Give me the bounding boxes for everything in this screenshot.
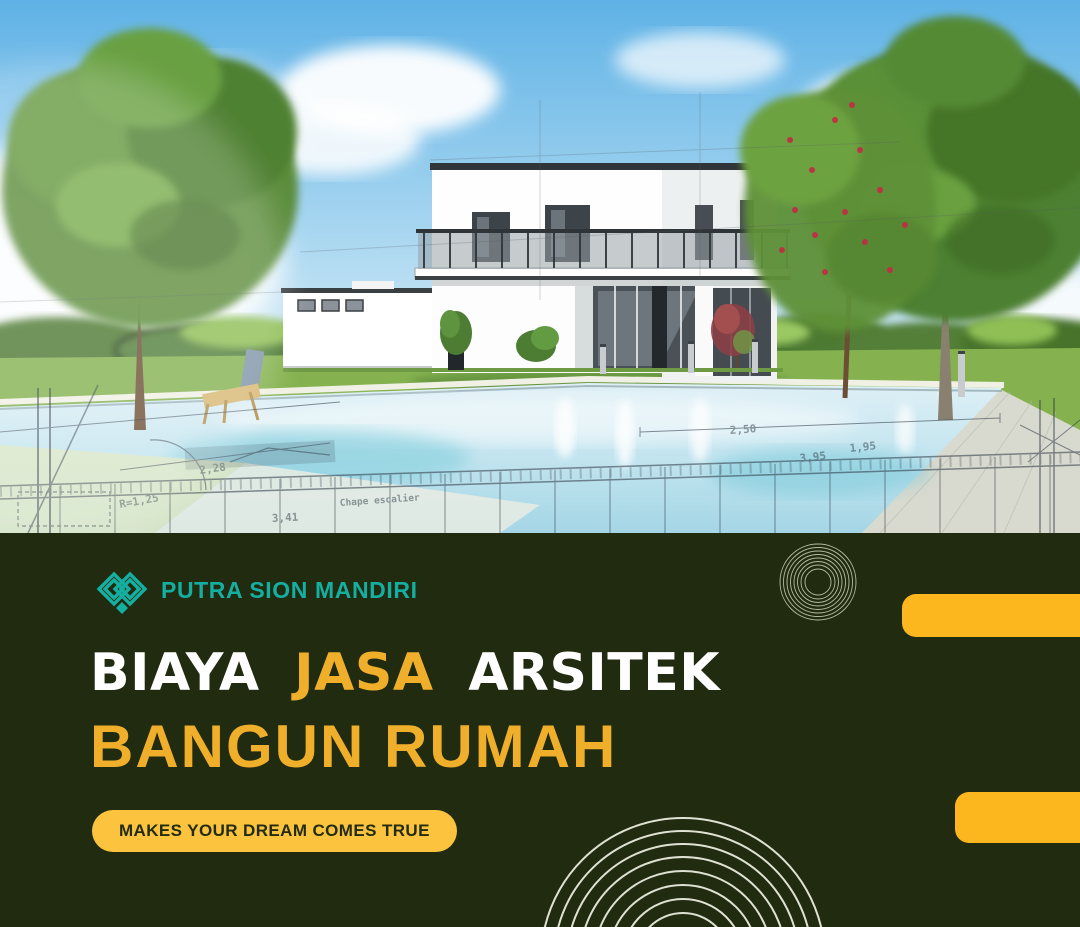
concentric-circles-decor-bottom xyxy=(533,810,833,927)
headline-word-biaya: BIAYA xyxy=(90,643,260,703)
hero-photo: 2,28 R=1,25 3,41 Chape escalier 2,50 3,9… xyxy=(0,0,1080,533)
yellow-accent-bar-bottom xyxy=(955,792,1080,843)
brand: PUTRA SION MANDIRI xyxy=(95,564,418,616)
house-render-illustration: 2,28 R=1,25 3,41 Chape escalier 2,50 3,9… xyxy=(0,0,1080,533)
headline-line1: BIAYA JASA ARSITEK xyxy=(90,645,736,701)
tagline-text: MAKES YOUR DREAM COMES TRUE xyxy=(119,821,430,840)
headline-word-jasa: JASA xyxy=(294,643,433,703)
headline: BIAYA JASA ARSITEK BANGUN RUMAH xyxy=(90,645,736,777)
blueprint-dim-label: 3,95 xyxy=(799,449,827,465)
brand-logo-icon xyxy=(95,564,149,616)
tagline-badge: MAKES YOUR DREAM COMES TRUE xyxy=(92,810,457,852)
headline-word-arsitek: ARSITEK xyxy=(468,643,720,703)
concentric-circles-decor-top xyxy=(776,540,860,624)
blueprint-dim-label: 1,95 xyxy=(849,439,877,455)
headline-line2: BANGUN RUMAH xyxy=(90,717,736,777)
poster: 2,28 R=1,25 3,41 Chape escalier 2,50 3,9… xyxy=(0,0,1080,927)
yellow-accent-bar-top xyxy=(902,594,1080,637)
blueprint-dim-label: 2,50 xyxy=(729,422,756,437)
brand-name: PUTRA SION MANDIRI xyxy=(161,577,418,604)
blueprint-dim-label: 3,41 xyxy=(271,511,299,525)
